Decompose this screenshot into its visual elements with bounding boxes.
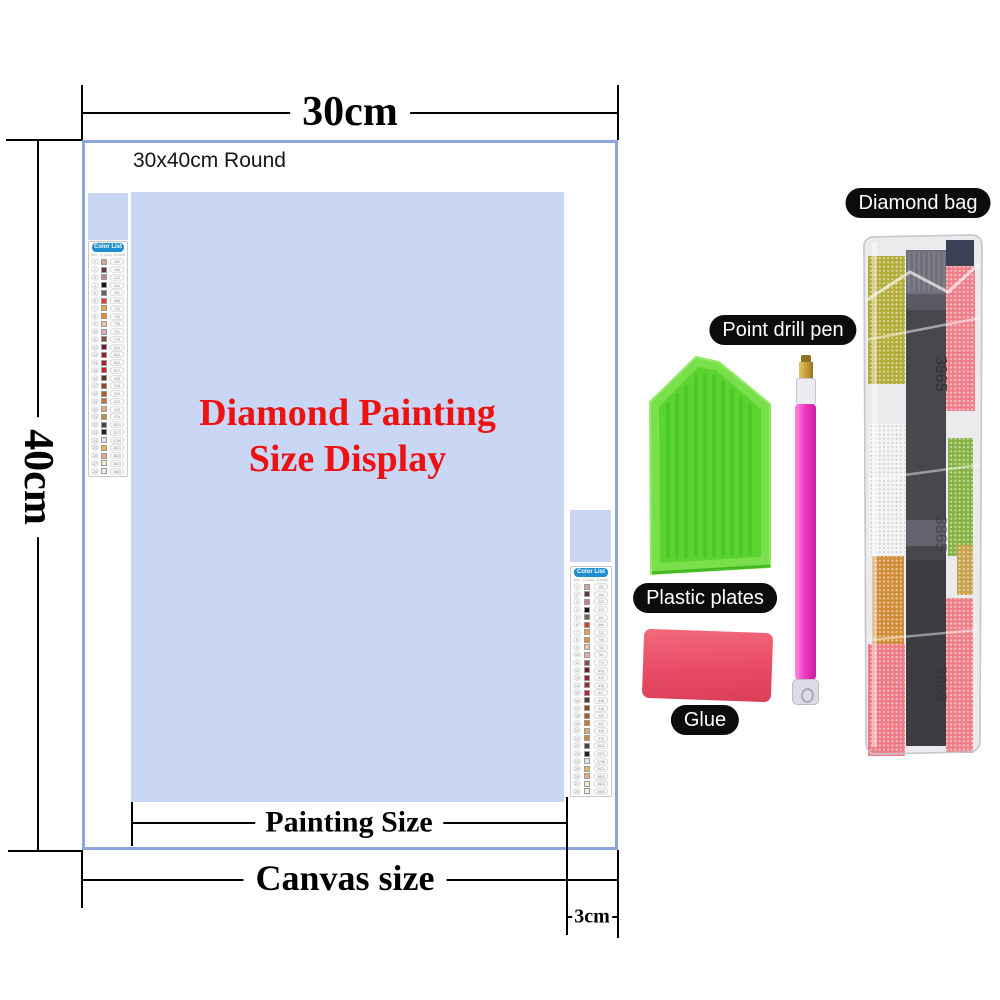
plastic-plates-label: Plastic plates [633,583,777,613]
color-swatch [101,298,107,304]
color-swatch [584,720,590,726]
title-line-2: Size Display [131,436,564,482]
measure-label-30cm: 30cm [290,90,410,134]
color-swatch [101,375,107,381]
color-list-row: 233371 [573,750,609,758]
color-swatch [101,429,107,435]
color-list-row: 10761 [573,651,609,659]
color-list-row: 11779 [573,659,609,667]
title-line-1: Diamond Painting [131,390,564,436]
color-swatch [584,697,590,703]
color-list-row: 15817 [573,689,609,697]
color-swatch [584,644,590,650]
color-list-row: 17918 [573,704,609,712]
color-list-row: 8740 [573,636,609,644]
color-swatch [584,622,590,628]
color-swatch [101,437,107,443]
color-swatch [584,682,590,688]
color-list-row: 13815 [573,674,609,682]
color-swatch [101,422,107,428]
color-list-row: 12814 [91,343,125,351]
color-swatch [101,336,107,342]
title: Diamond Painting Size Display [131,390,564,482]
color-list-row: 14816 [573,682,609,690]
color-swatch [101,406,107,412]
color-list-row: 9754 [91,320,125,328]
color-swatch [101,313,107,319]
color-list-row: 3223 [91,274,125,282]
pen-cap [792,679,819,705]
color-swatch [101,398,107,404]
color-swatch [584,781,590,787]
color-list-row: 273823 [91,460,125,468]
diamond-bag-label: Diamond bag [846,188,991,218]
color-swatch [584,758,590,764]
pen-cap-hole [801,688,814,703]
color-swatch [584,773,590,779]
color-swatch [584,713,590,719]
color-list-row: 7722 [573,628,609,636]
point-drill-pen-label: Point drill pen [709,315,856,345]
color-swatch [101,460,107,466]
plastic-tray [640,350,780,582]
measure-label-40cm: 40cm [16,417,60,537]
diamond-painting-size-diagram: 30x40cm Round Color ListNo. Color Code11… [0,0,1000,1000]
color-list-row: 18920 [91,390,125,398]
glue-label: Glue [671,705,739,735]
color-list-row: 263825 [91,452,125,460]
color-list-row: 1152 [573,583,609,591]
color-list-row: 223021 [573,742,609,750]
color-list-row: 21976 [573,735,609,743]
color-list-row: 6666 [573,621,609,629]
measure-tick-40cm-top [6,139,82,141]
color-list-row: 2154 [573,591,609,599]
color-swatch [584,607,590,613]
color-swatch [584,788,590,794]
color-swatch [101,329,107,335]
color-list-row: 4310 [573,606,609,614]
color-list-row: 283865 [573,788,609,796]
color-list-row: 243756 [573,757,609,765]
color-swatch [584,766,590,772]
measure-tick-painting-right [566,797,568,935]
color-swatch [584,690,590,696]
bag-code-text-faint: 3865 [932,516,949,552]
color-list-row: 273823 [573,780,609,788]
color-swatch [584,591,590,597]
color-list-row: 2154 [91,266,125,274]
color-swatch [584,675,590,681]
pen-tip-metal [799,362,813,379]
color-swatch [101,282,107,288]
color-swatch [584,599,590,605]
color-list-row: 5451 [91,289,125,297]
color-list-row: 223021 [91,421,125,429]
color-list-row: 13815 [91,351,125,359]
color-swatch [584,637,590,643]
color-list-row: 4310 [91,281,125,289]
measure-tick-canvas-right [617,850,619,938]
color-list-row: 253821 [91,444,125,452]
measure-tick-30cm-left [81,85,83,140]
color-list-row: 283865 [91,467,125,475]
color-swatch [584,705,590,711]
color-swatch [101,383,107,389]
measure-label-canvas-size: Canvas size [244,860,447,898]
color-list-strip-left: Color ListNo. Color Code1152215432234310… [88,241,128,477]
measure-label-3cm: 3cm [572,907,612,928]
canvas-size-note: 30x40cm Round [133,149,286,173]
measure-tick-40cm-bottom [8,850,82,852]
color-list-row: 10761 [91,328,125,336]
color-list-row: 21976 [91,413,125,421]
color-list-row: 18920 [573,712,609,720]
diamond-bag: 3865 3865 3865 [855,228,990,768]
color-swatch [584,728,590,734]
color-list-row: 233371 [91,429,125,437]
measure-tick-painting-left [131,802,133,846]
color-list-row: 17918 [91,382,125,390]
bag-code-text: 3865 [932,356,949,392]
color-list-row: 8740 [91,312,125,320]
color-list-row: 7722 [91,305,125,313]
color-list-row: 16838 [91,374,125,382]
color-list-row: 12814 [573,666,609,674]
color-swatch [584,667,590,673]
color-swatch [584,660,590,666]
color-swatch [101,391,107,397]
color-list-row: 15817 [91,367,125,375]
color-swatch [101,360,107,366]
color-swatch [101,267,107,273]
measure-tick-canvas-left [81,850,83,908]
color-list-row: 253821 [573,765,609,773]
color-swatch [584,584,590,590]
pen-collar [796,378,816,405]
color-list-header: Color List [574,568,608,577]
color-swatch [101,305,107,311]
color-swatch [101,367,107,373]
color-swatch [101,344,107,350]
color-list-row: 243756 [91,436,125,444]
color-list-row: 3223 [573,598,609,606]
color-swatch [101,414,107,420]
measure-tick-30cm-right [617,85,619,140]
color-swatch [101,453,107,459]
color-list-row: 19922 [573,719,609,727]
color-swatch [101,352,107,358]
color-list-strip-right: Color ListNo. Color Code1152215432234310… [570,566,612,797]
color-list-row: 20945 [573,727,609,735]
color-swatch [101,445,107,451]
glue-block [642,629,773,702]
color-swatch [101,290,107,296]
measure-label-painting-size: Painting Size [255,806,443,838]
color-list-row: 20945 [91,405,125,413]
color-swatch [101,321,107,327]
color-swatch [101,468,107,474]
color-list-row: 14816 [91,359,125,367]
color-list-row: 5451 [573,613,609,621]
right-blue-square [570,510,611,562]
color-swatch [584,751,590,757]
color-list-header: Color List [92,243,124,252]
color-swatch [584,743,590,749]
color-swatch [584,652,590,658]
color-swatch [584,629,590,635]
color-swatch [584,735,590,741]
color-list-row: 1152 [91,258,125,266]
color-swatch [584,614,590,620]
color-list-row: 19922 [91,398,125,406]
color-list-row: 6666 [91,297,125,305]
left-blue-square [88,193,128,240]
color-list-row: 9754 [573,644,609,652]
bag-code-text-faint-2: 3865 [932,666,949,702]
color-list-row: 16838 [573,697,609,705]
painting-area [131,192,564,802]
color-list-row: 263825 [573,772,609,780]
color-swatch [101,259,107,265]
color-list-row: 11779 [91,336,125,344]
color-swatch [101,274,107,280]
pen-body [795,404,816,680]
